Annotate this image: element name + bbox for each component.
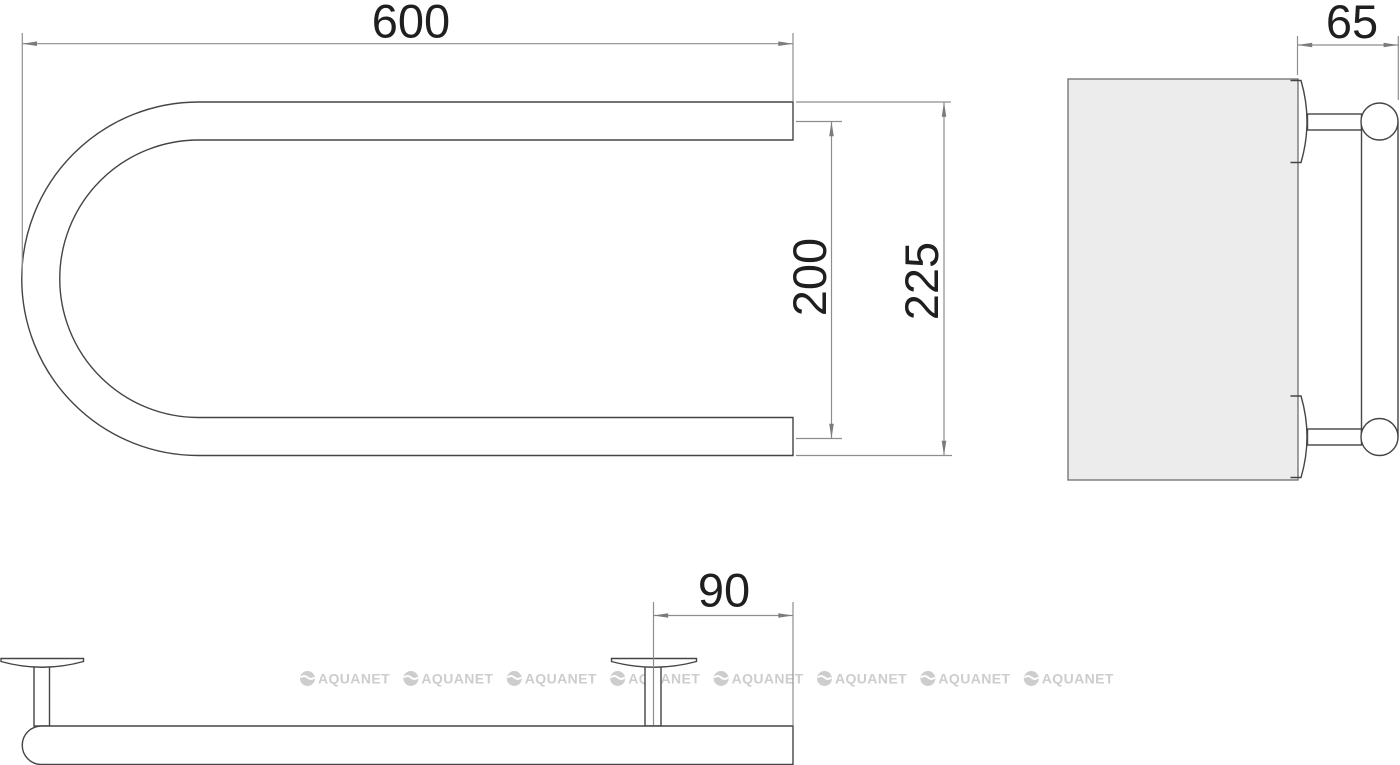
watermark-unit: AQUANET	[714, 671, 804, 687]
watermark-unit: AQUANET	[1024, 671, 1114, 687]
watermark-unit: AQUANET	[403, 671, 493, 687]
side-view: 65	[1068, 0, 1398, 480]
arrow-right-icon	[778, 613, 793, 618]
wall-panel	[1068, 79, 1298, 480]
mount-stem-top	[1308, 114, 1362, 130]
bottom-view: 90	[1, 564, 793, 765]
dimension-label-90: 90	[698, 564, 750, 617]
watermark-unit: AQUANET	[507, 671, 597, 687]
watermark-text: AQUANET	[525, 671, 597, 687]
arrow-right-icon	[1384, 43, 1399, 48]
arrow-right-icon	[778, 41, 793, 46]
arrow-up-icon	[942, 102, 947, 117]
arrow-left-icon	[1298, 43, 1313, 48]
watermark-text: AQUANET	[835, 671, 907, 687]
watermark-text: AQUANET	[318, 671, 390, 687]
dimension-label-65: 65	[1326, 0, 1378, 48]
mount-stem-bottom	[1308, 429, 1362, 445]
dimension-label-200: 200	[783, 238, 836, 316]
watermark-text: AQUANET	[628, 671, 700, 687]
technical-drawing-canvas: AQUANET AQUANET AQUANET AQUANET AQUANET	[0, 0, 1400, 765]
arrow-down-icon	[829, 424, 834, 439]
arrow-left-icon	[22, 41, 37, 46]
arrow-left-icon	[654, 613, 669, 618]
u-tube-outline	[22, 102, 793, 456]
watermark-text: AQUANET	[938, 671, 1010, 687]
watermark-row: AQUANET AQUANET AQUANET AQUANET AQUANET	[300, 671, 1114, 687]
dimension-tube-center-distance: 200	[783, 122, 842, 439]
dimension-bracket-to-end: 90	[654, 564, 794, 726]
bracket-cap-left	[1, 659, 84, 668]
dimension-label-225: 225	[895, 242, 948, 320]
watermark-unit: AQUANET	[817, 671, 907, 687]
watermark-unit: AQUANET	[300, 671, 390, 687]
ball-end-top	[1361, 103, 1398, 140]
arrow-down-icon	[942, 441, 947, 456]
bracket-stem-left	[34, 664, 50, 726]
front-view: 600 200 225	[22, 0, 952, 456]
dimension-label-600: 600	[372, 0, 450, 48]
ball-end-bottom	[1361, 419, 1398, 456]
rail-tube-top-view	[22, 726, 793, 765]
arrow-up-icon	[829, 122, 834, 137]
watermark-unit: AQUANET	[920, 671, 1010, 687]
watermark-text: AQUANET	[1042, 671, 1114, 687]
towel-rail-drawing: AQUANET AQUANET AQUANET AQUANET AQUANET	[0, 0, 1400, 765]
dimension-wall-offset: 65	[1298, 0, 1399, 100]
watermark-text: AQUANET	[421, 671, 493, 687]
